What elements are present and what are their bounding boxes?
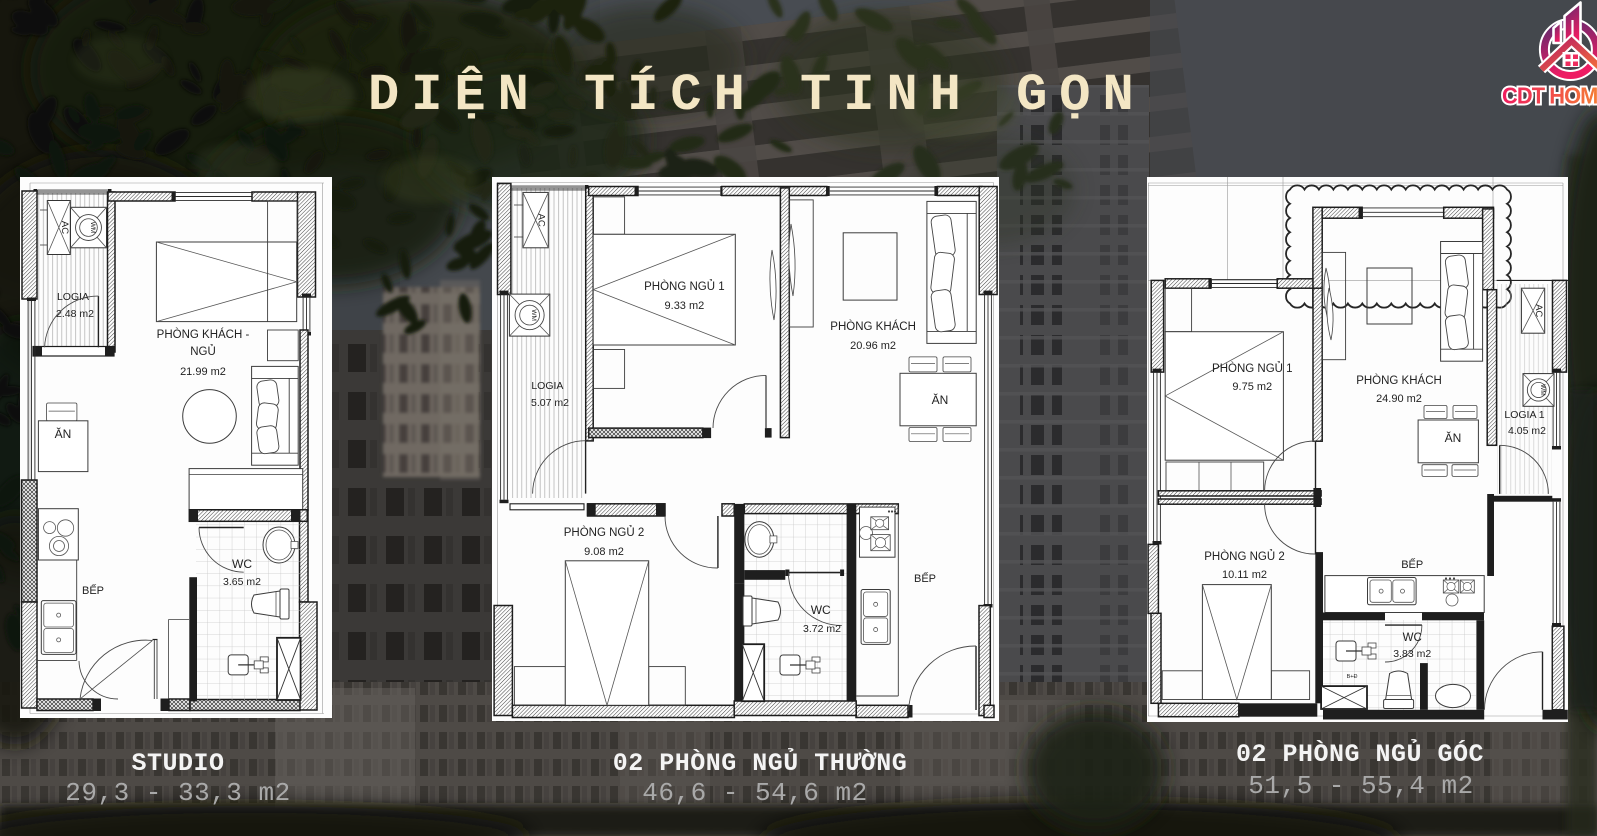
svg-text:PHÒNG NGỦ 2: PHÒNG NGỦ 2 <box>564 526 645 539</box>
svg-text:4.05 m2: 4.05 m2 <box>1508 425 1546 437</box>
svg-text:LOGIA 1: LOGIA 1 <box>1504 409 1544 421</box>
svg-text:B+Đ: B+Đ <box>1347 674 1358 680</box>
svg-text:ĂN: ĂN <box>55 426 72 441</box>
svg-text:ĂN: ĂN <box>1445 430 1462 445</box>
svg-text:WC: WC <box>811 603 831 617</box>
svg-text:PHÒNG KHÁCH: PHÒNG KHÁCH <box>1356 374 1442 387</box>
svg-text:PHÒNG KHÁCH -: PHÒNG KHÁCH - <box>157 328 250 341</box>
svg-text:3.83 m2: 3.83 m2 <box>1393 648 1431 660</box>
svg-text:PHÒNG NGỦ 1: PHÒNG NGỦ 1 <box>644 280 725 293</box>
svg-text:WC: WC <box>1403 632 1422 644</box>
svg-text:WM: WM <box>89 222 96 234</box>
svg-text:9.75 m2: 9.75 m2 <box>1232 381 1272 393</box>
svg-text:PHÒNG NGỦ 1: PHÒNG NGỦ 1 <box>1212 362 1293 375</box>
svg-text:LOGIA: LOGIA <box>531 380 563 392</box>
svg-text:AC: AC <box>1533 304 1544 317</box>
svg-text:CDT HOME: CDT HOME <box>1502 82 1597 109</box>
svg-text:PHÒNG KHÁCH: PHÒNG KHÁCH <box>830 320 916 333</box>
svg-text:24.90 m2: 24.90 m2 <box>1376 393 1422 405</box>
svg-text:WM: WM <box>530 309 537 321</box>
svg-text:3.72 m2: 3.72 m2 <box>803 623 841 635</box>
svg-text:10.11 m2: 10.11 m2 <box>1222 569 1267 581</box>
svg-text:9.33 m2: 9.33 m2 <box>665 300 705 312</box>
svg-text:20.96 m2: 20.96 m2 <box>850 340 896 352</box>
svg-text:9.08 m2: 9.08 m2 <box>584 546 624 558</box>
svg-text:BẾP: BẾP <box>914 572 936 585</box>
svg-text:WM: WM <box>1539 384 1546 396</box>
svg-text:BẾP: BẾP <box>82 584 104 597</box>
svg-text:3.65 m2: 3.65 m2 <box>223 576 261 588</box>
svg-text:5.07 m2: 5.07 m2 <box>531 397 569 409</box>
svg-text:BẾP: BẾP <box>1401 558 1423 571</box>
svg-text:AC: AC <box>536 213 547 226</box>
svg-text:PHÒNG NGỦ 2: PHÒNG NGỦ 2 <box>1204 550 1285 563</box>
svg-text:LOGIA: LOGIA <box>57 291 89 303</box>
svg-text:ĂN: ĂN <box>932 392 949 407</box>
svg-text:NGỦ: NGỦ <box>190 345 216 358</box>
svg-text:WC: WC <box>232 557 252 571</box>
svg-text:21.99 m2: 21.99 m2 <box>180 366 226 378</box>
svg-text:AC: AC <box>59 221 70 234</box>
